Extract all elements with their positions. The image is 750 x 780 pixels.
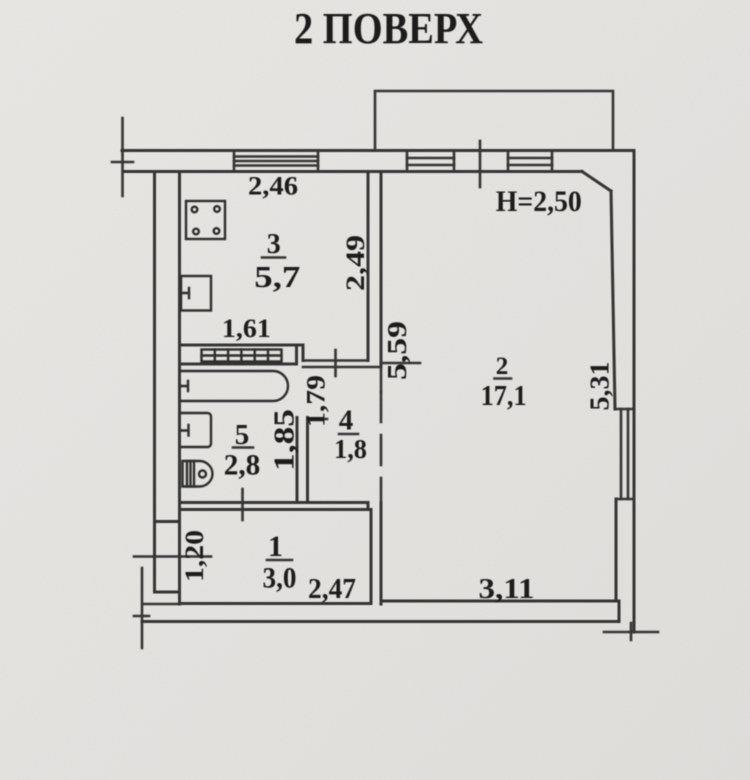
svg-text:2: 2 xyxy=(496,353,509,380)
svg-text:2,49: 2,49 xyxy=(341,235,370,291)
svg-text:1,20: 1,20 xyxy=(180,530,209,582)
svg-text:1,61: 1,61 xyxy=(222,314,271,343)
svg-text:2 ПОВЕРХ: 2 ПОВЕРХ xyxy=(294,4,483,53)
svg-text:3,11: 3,11 xyxy=(479,574,535,605)
svg-text:1: 1 xyxy=(268,530,283,563)
svg-text:2,8: 2,8 xyxy=(224,449,261,482)
svg-text:H=2,50: H=2,50 xyxy=(496,185,582,218)
svg-text:3,0: 3,0 xyxy=(263,562,297,595)
svg-text:2,46: 2,46 xyxy=(248,172,298,201)
svg-text:1,8: 1,8 xyxy=(334,434,367,464)
svg-text:1,85: 1,85 xyxy=(270,409,301,471)
svg-text:5,7: 5,7 xyxy=(254,259,300,294)
svg-text:4: 4 xyxy=(339,405,354,437)
svg-text:1,79: 1,79 xyxy=(301,375,330,427)
svg-text:3: 3 xyxy=(267,229,281,260)
svg-text:17,1: 17,1 xyxy=(481,381,527,412)
svg-text:2,47: 2,47 xyxy=(308,574,356,605)
svg-text:5,59: 5,59 xyxy=(382,321,412,380)
svg-text:5,31: 5,31 xyxy=(585,362,615,411)
